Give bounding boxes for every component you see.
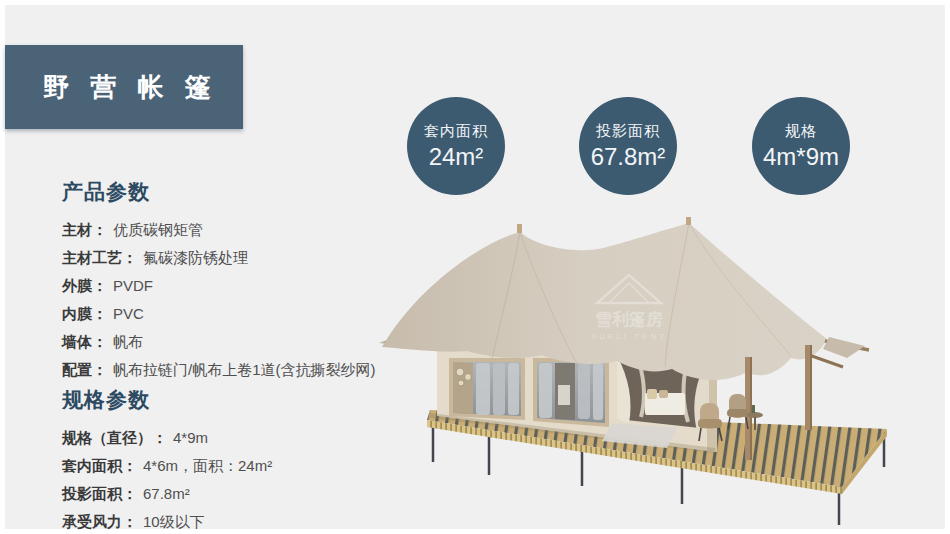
section-heading: 产品参数 [62, 178, 376, 206]
param-row: 外膜：PVDF [62, 272, 376, 300]
window-left [449, 358, 525, 420]
pillow [647, 389, 657, 399]
spec-params-section: 规格参数 规格（直径）：4*9m 套内面积：4*6m，面积：24m² 投影面积：… [62, 386, 272, 534]
pole-tip [686, 217, 691, 225]
param-row: 内膜：PVC [62, 300, 376, 328]
param-row: 主材工艺：氟碳漆防锈处理 [62, 244, 376, 272]
window-center [533, 358, 609, 427]
param-row: 规格（直径）：4*9m [62, 424, 272, 452]
param-row: 墙体：帆布 [62, 328, 376, 356]
stat-circle-inner-area: 套内面积 24m² [407, 97, 505, 195]
page-title-box: 野 营 帐 篷 [5, 45, 243, 129]
curtain [539, 363, 552, 418]
param-row: 主材：优质碳钢矩管 [62, 216, 376, 244]
curtain [493, 363, 505, 415]
stat-label: 规格 [785, 122, 817, 141]
stat-value: 24m² [429, 144, 484, 169]
param-row: 投影面积：67.8m² [62, 480, 272, 508]
stat-label: 投影面积 [596, 122, 660, 141]
param-row: 套内面积：4*6m，面积：24m² [62, 452, 272, 480]
stat-circle-projection-area: 投影面积 67.8m² [579, 97, 677, 195]
page-title: 野 营 帐 篷 [5, 70, 218, 105]
stat-value: 4m*9m [763, 144, 839, 169]
spreader-bar [809, 355, 843, 367]
product-params-section: 产品参数 主材：优质碳钢矩管 主材工艺：氟碳漆防锈处理 外膜：PVDF 内膜：P… [62, 178, 376, 384]
param-row: 配置：帆布拉链门/帆布上卷1道(含抗撕裂纱网) [62, 356, 376, 384]
curtain [476, 363, 490, 415]
tent-product-image: 雪利篷房 XUELI TENT [377, 217, 950, 534]
watermark-en: XUELI TENT [591, 332, 667, 341]
stat-label: 套内面积 [424, 122, 488, 141]
curtain [508, 363, 519, 415]
plant [752, 405, 755, 413]
curtain [593, 363, 603, 420]
param-row: 承受风力：10级以下 [62, 508, 272, 534]
interior-fixture [558, 385, 570, 405]
stat-circle-size: 规格 4m*9m [752, 97, 850, 195]
tent-illustration: 雪利篷房 XUELI TENT [377, 217, 950, 534]
watermark-cn: 雪利篷房 [595, 310, 663, 329]
pole-tip [517, 224, 522, 233]
pillow [659, 390, 668, 398]
canopy-flap-right [823, 337, 865, 358]
page-background: 野 营 帐 篷 套内面积 24m² 投影面积 67.8m² 规格 4m*9m 产… [5, 5, 945, 529]
stat-value: 67.8m² [591, 144, 666, 169]
curtain [578, 363, 590, 419]
section-heading: 规格参数 [62, 386, 272, 414]
